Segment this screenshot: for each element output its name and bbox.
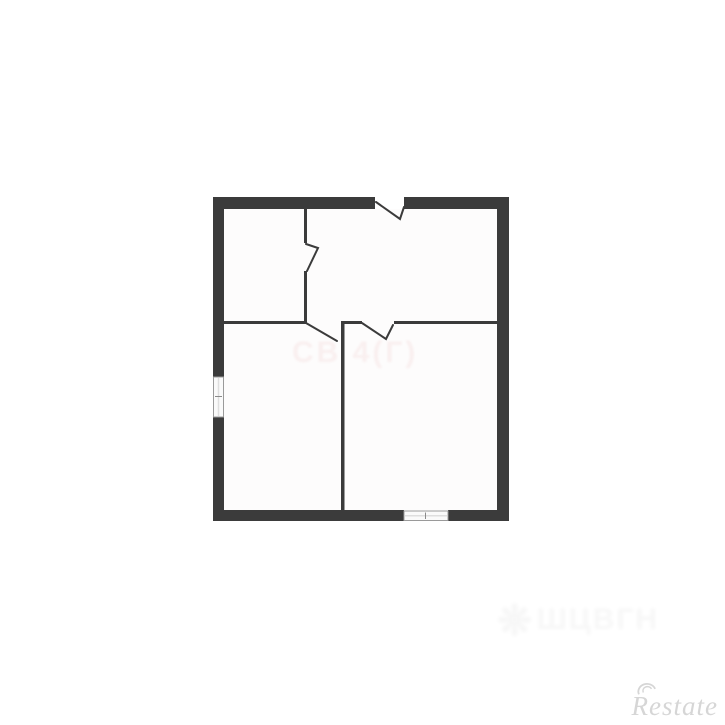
floor-plan-image: СВ 4(Г) ❋ ШЦВГН Restate xyxy=(0,0,725,725)
faint-bottom-watermark-text: ШЦВГН xyxy=(537,603,659,636)
restate-logo-curl-icon xyxy=(636,679,658,697)
wall-bottom-right-segment xyxy=(448,510,509,521)
faint-bottom-watermark-logo-icon: ❋ xyxy=(497,597,532,644)
partition-horizontal-right xyxy=(394,321,497,324)
wall-left-lower-segment xyxy=(213,417,224,521)
window-bottom-wall xyxy=(404,511,448,521)
faint-center-watermark: СВ 4(Г) xyxy=(292,336,442,370)
wall-bottom-left-segment xyxy=(213,510,404,521)
faint-center-watermark-text: СВ 4(Г) xyxy=(292,336,418,369)
window-left-wall xyxy=(214,377,224,417)
faint-bottom-watermark: ❋ ШЦВГН xyxy=(497,596,667,648)
wall-top-right-segment xyxy=(404,197,509,209)
wall-right xyxy=(497,197,509,521)
partition-vertical-upper-b xyxy=(304,271,307,323)
partition-horizontal-left xyxy=(224,321,306,324)
restate-watermark: Restate xyxy=(632,679,718,720)
wall-top-left-segment xyxy=(213,197,375,209)
partition-vertical-upper-a xyxy=(304,209,307,243)
wall-left-upper-segment xyxy=(213,197,224,377)
